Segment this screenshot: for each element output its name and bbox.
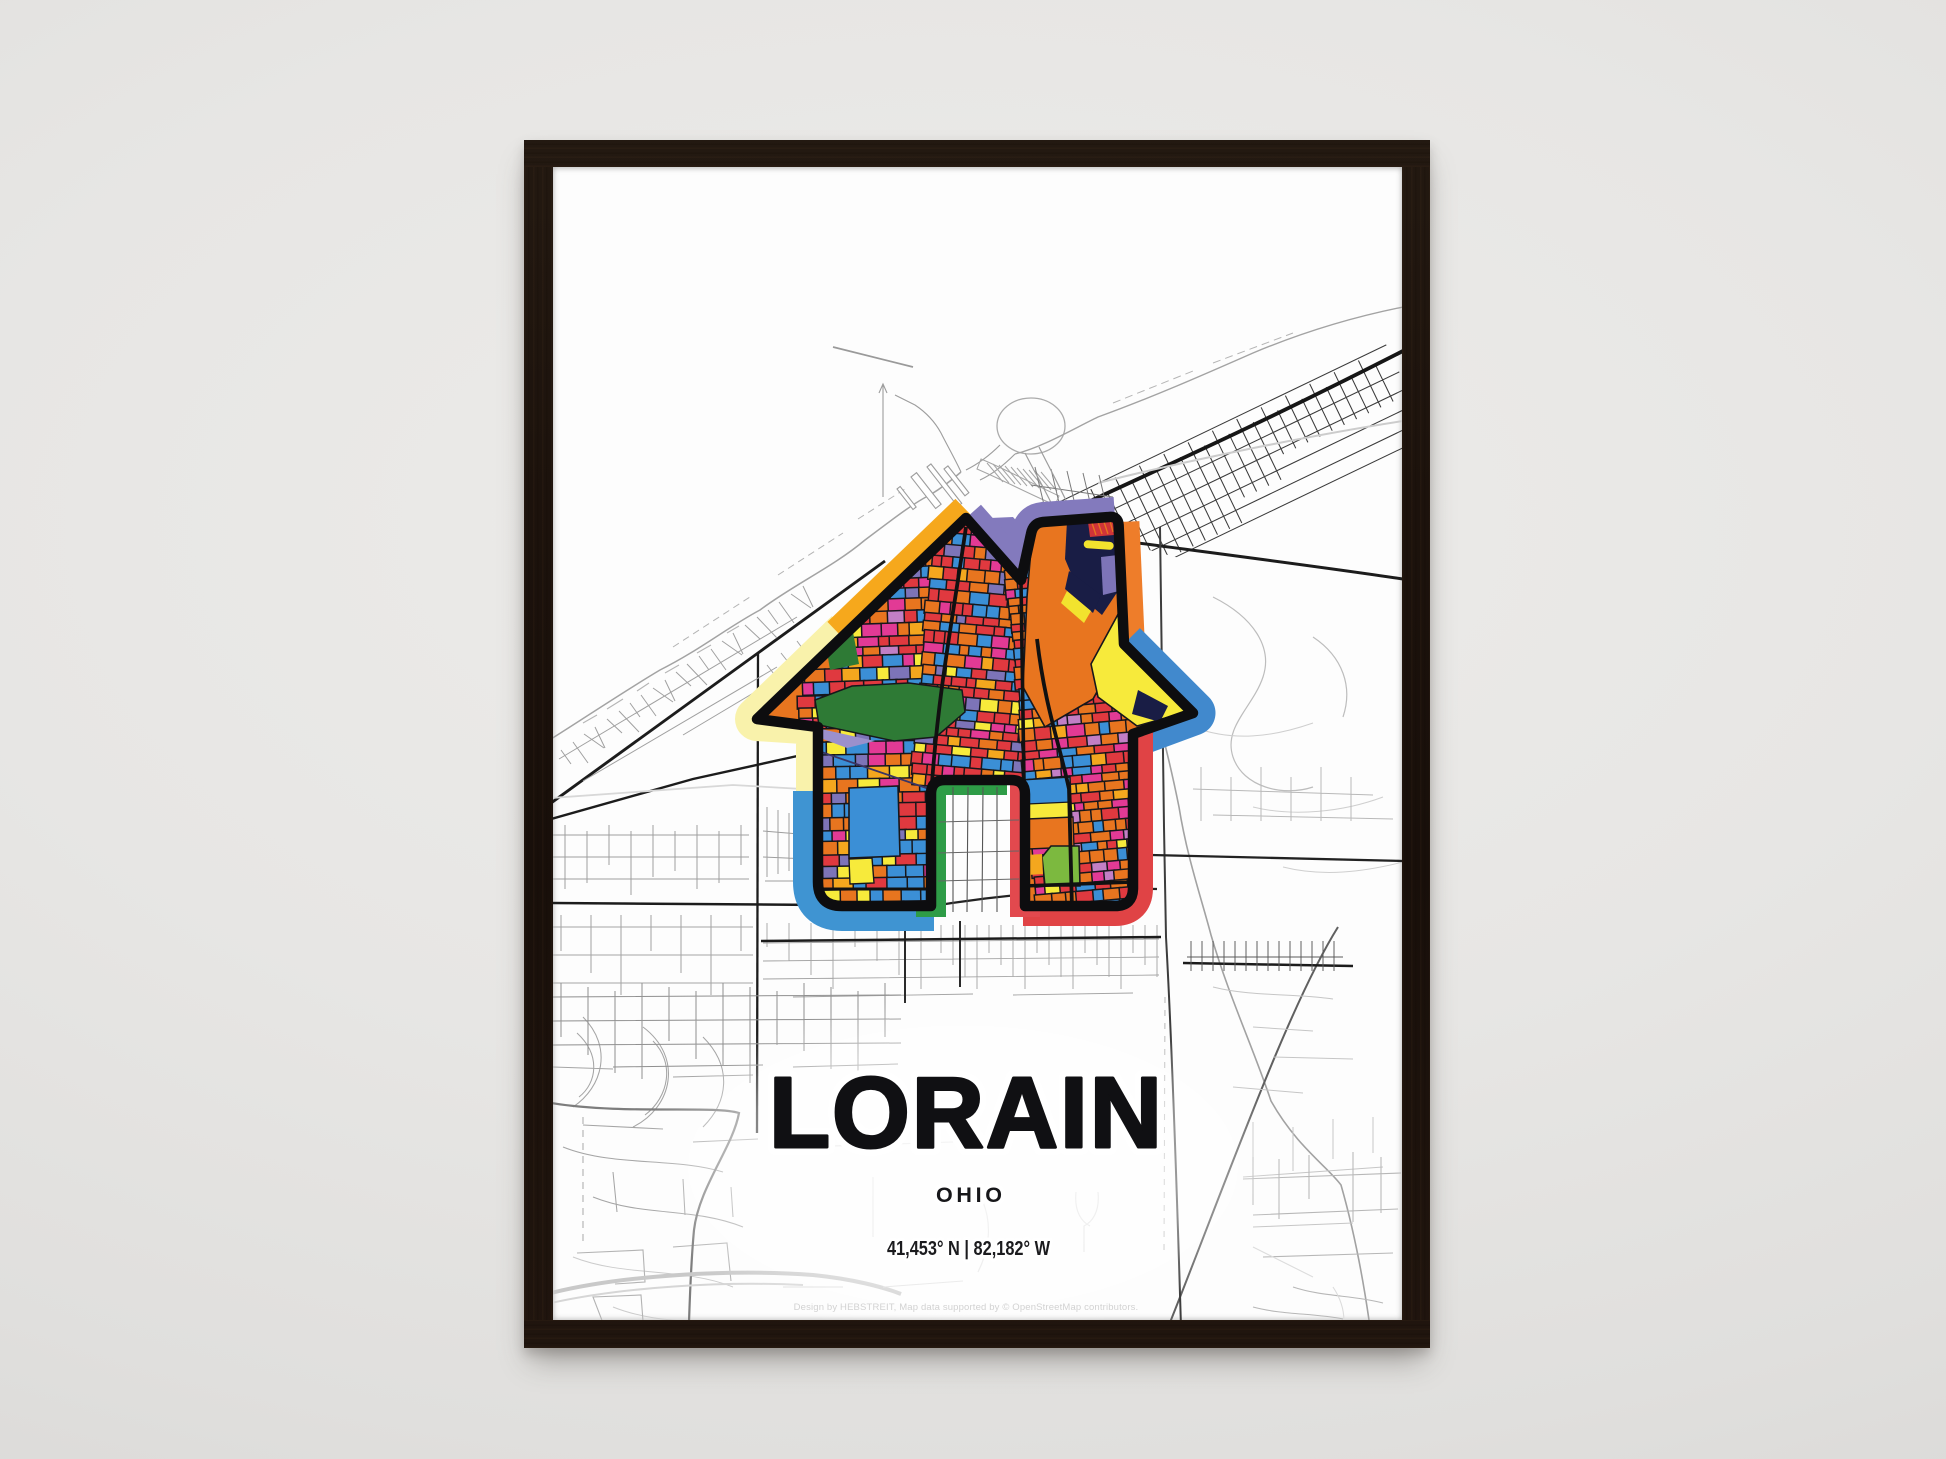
svg-text:Design by HEBSTREIT, Map data: Design by HEBSTREIT, Map data supported … — [794, 1302, 1139, 1313]
svg-text:LORAIN: LORAIN — [769, 1057, 1162, 1169]
svg-text:OHIO: OHIO — [936, 1183, 1002, 1207]
svg-text:41,453° N | 82,182° W: 41,453° N | 82,182° W — [887, 1238, 1050, 1260]
